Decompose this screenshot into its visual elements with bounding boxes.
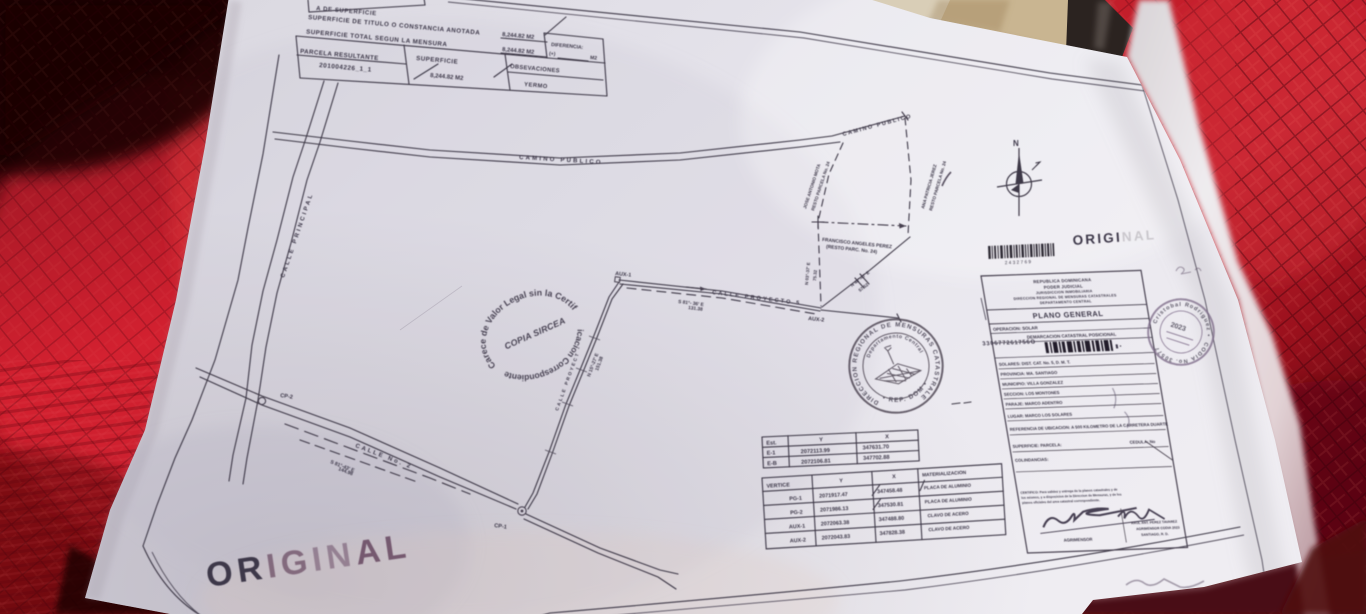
svg-text:E-B: E-B <box>767 461 777 467</box>
svg-text:347702.88: 347702.88 <box>863 455 890 462</box>
svg-text:PG-1: PG-1 <box>789 496 802 503</box>
svg-text:75.32: 75.32 <box>812 269 818 281</box>
svg-text:Y: Y <box>819 437 823 443</box>
svg-text:PG-2: PG-2 <box>790 510 803 517</box>
svg-text:X: X <box>885 434 889 440</box>
svg-text:▮ ▪: ▮ ▪ <box>1115 344 1122 350</box>
svg-text:AUX-2: AUX-2 <box>790 538 807 545</box>
svg-text:CEDULA: No: CEDULA: No <box>1129 439 1156 445</box>
svg-text:M2: M2 <box>590 55 598 62</box>
svg-text:N: N <box>1013 139 1019 148</box>
svg-text:E-1: E-1 <box>767 450 776 456</box>
svg-text:(+): (+) <box>549 51 556 58</box>
svg-text:347631.70: 347631.70 <box>862 444 889 451</box>
svg-text:AUX-1: AUX-1 <box>789 524 806 531</box>
svg-text:Est.: Est. <box>766 440 777 446</box>
svg-text:AGRIMENSOR: AGRIMENSOR <box>1063 537 1093 543</box>
